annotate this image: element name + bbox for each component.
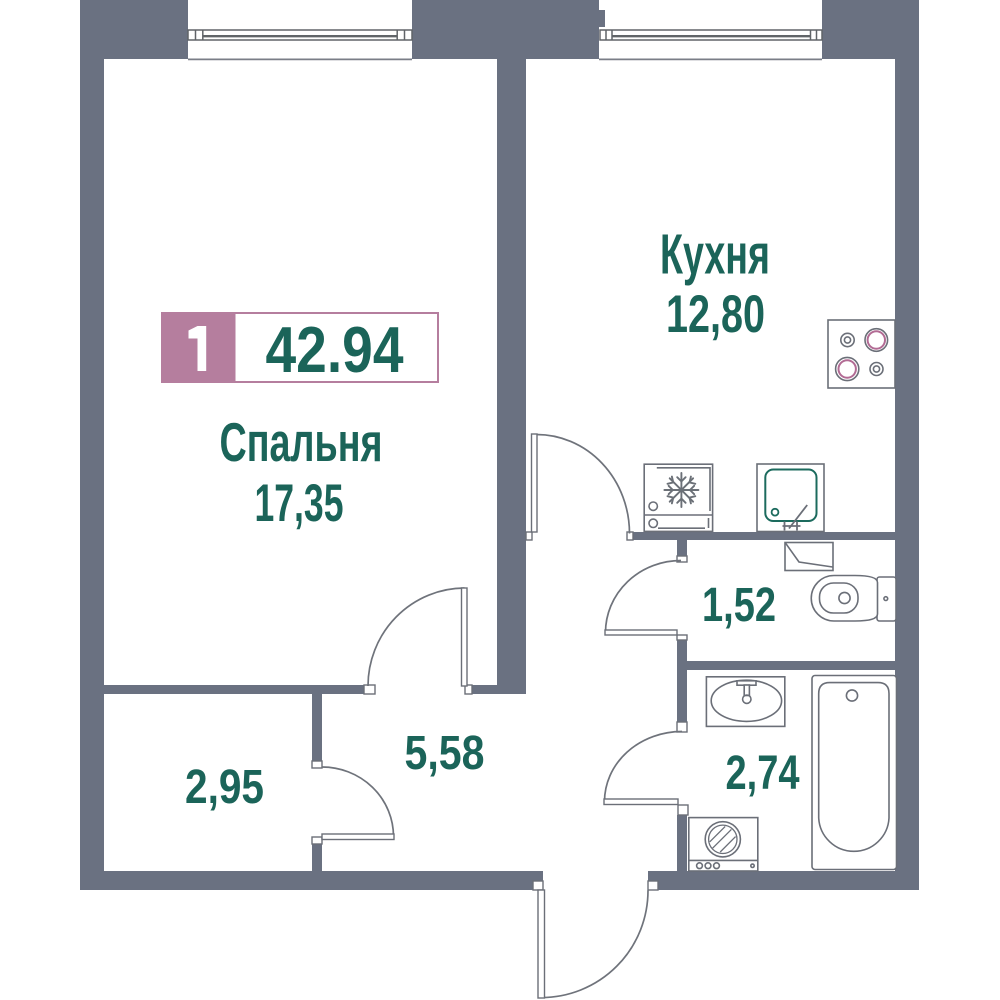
svg-text:5,58: 5,58 <box>405 727 485 780</box>
svg-text:1,52: 1,52 <box>702 579 776 632</box>
svg-text:Спальня: Спальня <box>220 411 383 473</box>
svg-text:12,80: 12,80 <box>666 285 765 344</box>
svg-text:2,74: 2,74 <box>726 747 800 800</box>
svg-text:Кухня: Кухня <box>660 223 770 287</box>
svg-text:2,95: 2,95 <box>185 761 264 814</box>
svg-text:42.94: 42.94 <box>266 313 404 386</box>
svg-text:17,35: 17,35 <box>255 474 344 533</box>
